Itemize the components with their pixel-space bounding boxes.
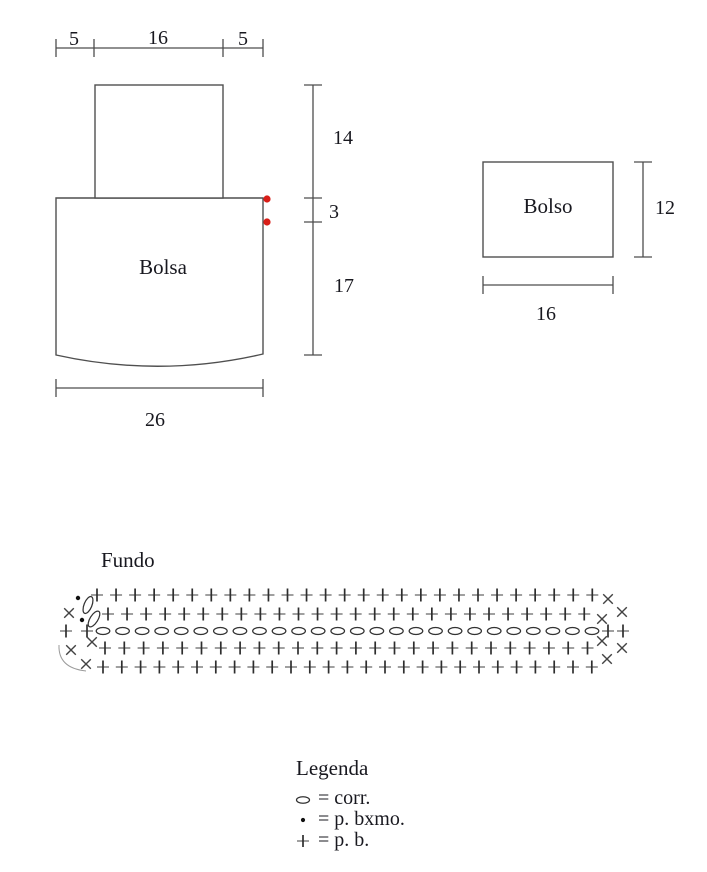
legend-item-single-crochet: = p. b. [290,830,405,851]
legend-item-chain: = corr. [290,788,405,809]
legend-item-label: = p. b. [318,829,369,852]
legend-item-label: = p. bxmo. [318,808,405,831]
chain-stitch-icon [290,791,316,807]
legend-item-slip-stitch: = p. bxmo. [290,809,405,830]
legend-item-label: = corr. [318,787,370,810]
legend-title: Legenda [296,756,405,781]
pattern-page: 5 16 5 Bolsa 14 3 17 26 [0,0,707,872]
slip-stitch-icon [290,812,316,828]
single-crochet-icon [290,833,316,849]
legend: Legenda = corr. = p. bxmo. = p. b. [290,756,405,851]
fundo-stitch-chart [0,0,707,872]
